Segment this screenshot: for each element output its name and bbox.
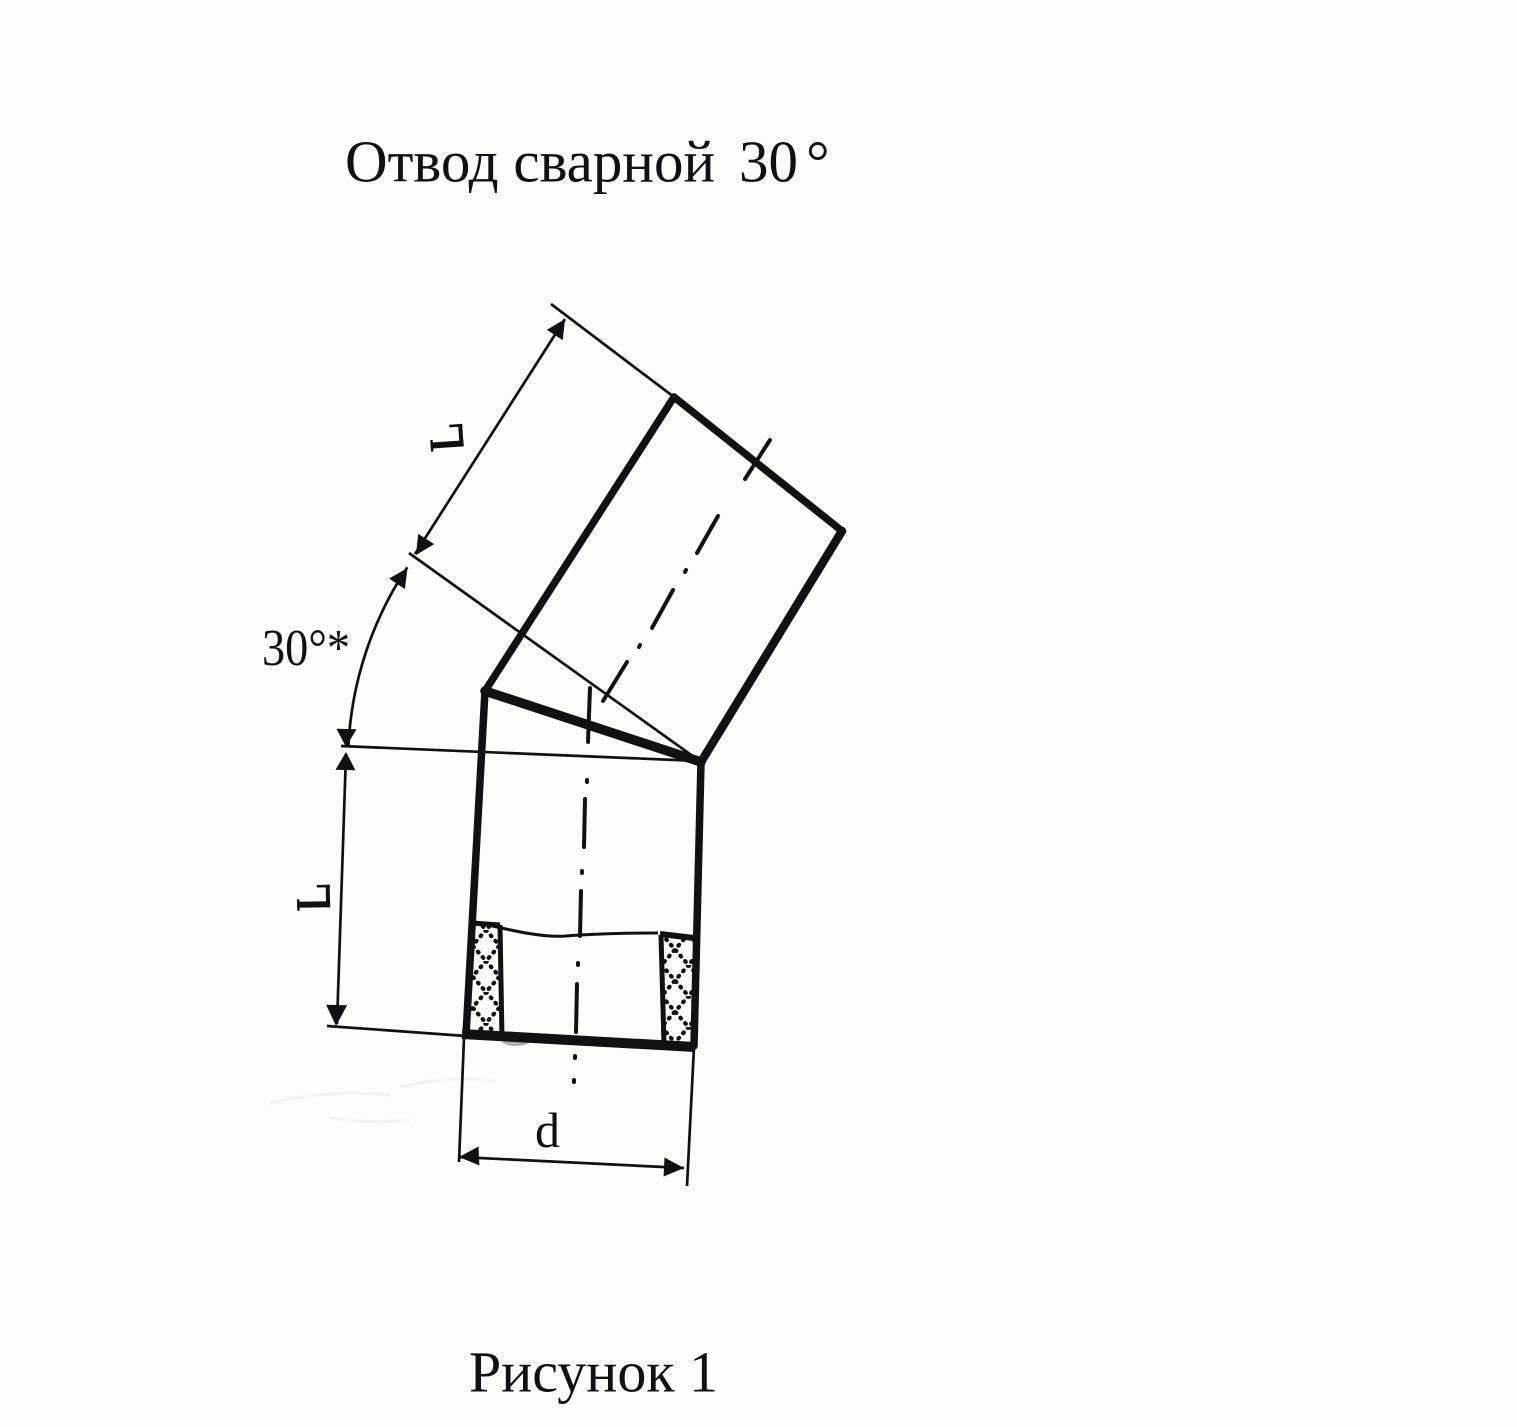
svg-text:30°*: 30°* <box>262 620 350 677</box>
svg-text:Отвод сварной30°: Отвод сварной30° <box>345 129 830 195</box>
svg-text:d: d <box>535 1102 560 1158</box>
svg-text:Рисунок 1: Рисунок 1 <box>469 1340 718 1405</box>
